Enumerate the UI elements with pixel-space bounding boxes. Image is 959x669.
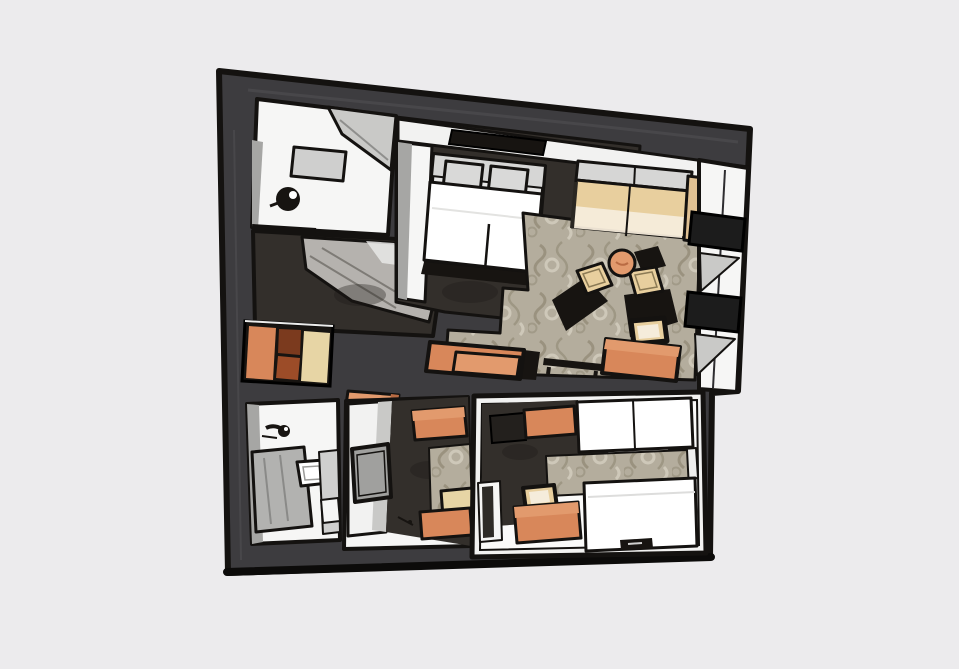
faucet-body [278, 425, 290, 437]
media-bar-dash [628, 543, 642, 544]
faucet-dot [284, 427, 288, 431]
room-second-bedroom: second bedroom [472, 392, 706, 557]
cabinet-drawer-bottom [276, 356, 300, 380]
vanity-counter [252, 447, 312, 532]
sofa-back-split [634, 167, 635, 187]
floor-lamp-icon [276, 187, 300, 211]
dark-shelf [490, 413, 526, 443]
floor-blotch [502, 444, 538, 460]
cabinet-orange-door [246, 326, 276, 380]
tan-chair-inner [529, 490, 550, 504]
wall-box-upper [689, 212, 745, 251]
floor-blotch [334, 284, 386, 306]
bench-chest [420, 508, 472, 539]
floor-blotch [442, 281, 498, 303]
floor-lamp-highlight [289, 191, 297, 199]
wardrobe-chest [524, 406, 576, 438]
wall-shelf-box [291, 147, 346, 181]
room-entry-dressing: entry dressing room [252, 99, 396, 235]
armchair-seat [629, 267, 663, 296]
cabinet-drawer-top [278, 329, 301, 355]
room-dressing-hallway: dressing hallway [344, 397, 474, 549]
sketch-dot [408, 520, 412, 524]
sofa [572, 161, 704, 242]
cabinet-cream-door [301, 331, 330, 383]
chest-inner [453, 352, 520, 377]
floor-plan-svg: floor-plan-illustration entry dressing r… [0, 0, 959, 669]
room-bathroom: bathroom [247, 400, 340, 544]
bench-chair-inner [637, 324, 660, 339]
small-box [321, 498, 340, 523]
door-niche-dark [482, 486, 494, 538]
storage-cabinet: storage cabinet [242, 321, 333, 386]
round-coffee-table [609, 250, 635, 276]
floor-plan-canvas: floor-plan-illustration entry dressing r… [0, 0, 959, 669]
wall-box-lower [685, 292, 741, 332]
